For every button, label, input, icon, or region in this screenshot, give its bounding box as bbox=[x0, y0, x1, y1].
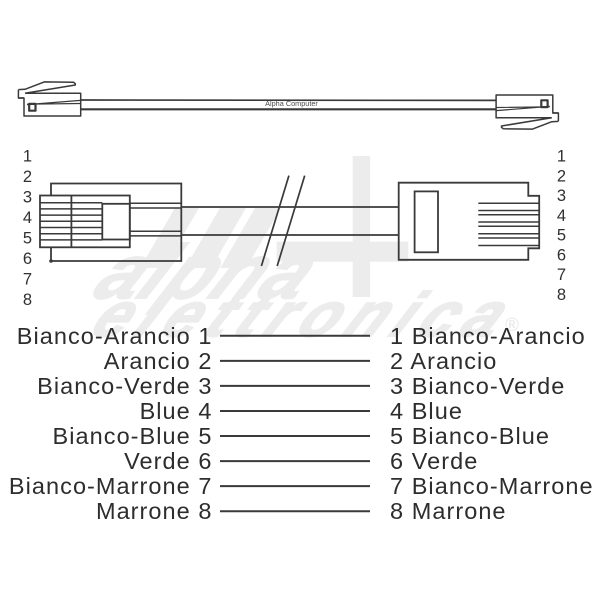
svg-text:8 Marrone: 8 Marrone bbox=[390, 498, 507, 524]
svg-text:5 Bianco-Blue: 5 Bianco-Blue bbox=[390, 423, 550, 449]
svg-text:1 Bianco-Arancio: 1 Bianco-Arancio bbox=[390, 323, 586, 349]
svg-text:3: 3 bbox=[23, 189, 32, 207]
svg-text:5: 5 bbox=[557, 227, 566, 245]
svg-text:4: 4 bbox=[557, 207, 566, 225]
svg-text:6: 6 bbox=[23, 250, 32, 268]
svg-text:4 Blue: 4 Blue bbox=[390, 398, 463, 424]
svg-text:Bianco-Blue 5: Bianco-Blue 5 bbox=[53, 423, 213, 449]
svg-text:8: 8 bbox=[23, 291, 32, 309]
svg-text:2: 2 bbox=[23, 168, 32, 186]
svg-text:7 Bianco-Marrone: 7 Bianco-Marrone bbox=[390, 473, 594, 499]
svg-text:Alpha Computer: Alpha Computer bbox=[265, 99, 318, 108]
svg-text:Marrone 8: Marrone 8 bbox=[96, 498, 213, 524]
svg-text:8: 8 bbox=[557, 286, 566, 304]
svg-text:3: 3 bbox=[557, 187, 566, 205]
svg-text:Blue 4: Blue 4 bbox=[140, 398, 213, 424]
svg-text:5: 5 bbox=[23, 229, 32, 247]
svg-text:4: 4 bbox=[23, 209, 32, 227]
svg-text:6: 6 bbox=[557, 247, 566, 265]
svg-text:Verde 6: Verde 6 bbox=[124, 448, 212, 474]
svg-text:7: 7 bbox=[557, 266, 566, 284]
svg-text:Bianco-Marrone 7: Bianco-Marrone 7 bbox=[9, 473, 213, 499]
svg-text:7: 7 bbox=[23, 270, 32, 288]
svg-text:1: 1 bbox=[557, 148, 566, 166]
svg-text:1: 1 bbox=[23, 148, 32, 166]
svg-text:Bianco-Verde 3: Bianco-Verde 3 bbox=[37, 373, 212, 399]
svg-text:Bianco-Arancio 1: Bianco-Arancio 1 bbox=[17, 323, 213, 349]
svg-text:2 Arancio: 2 Arancio bbox=[390, 348, 497, 374]
svg-text:Arancio 2: Arancio 2 bbox=[104, 348, 213, 374]
svg-text:3 Bianco-Verde: 3 Bianco-Verde bbox=[390, 373, 565, 399]
svg-text:6 Verde: 6 Verde bbox=[390, 448, 478, 474]
svg-text:2: 2 bbox=[557, 168, 566, 186]
